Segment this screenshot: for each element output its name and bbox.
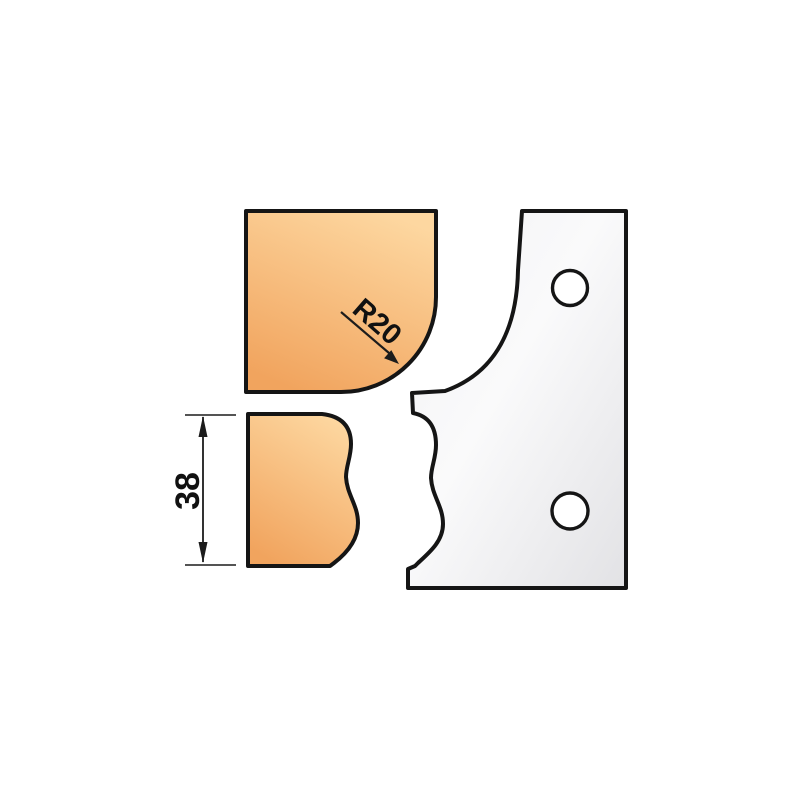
height-dimension: 38 xyxy=(169,415,236,565)
mounting-hole-top xyxy=(553,271,588,306)
mounting-hole-bottom xyxy=(552,493,588,529)
dimension-arrowhead-down-icon xyxy=(199,542,208,563)
dimension-arrowhead-up-icon xyxy=(199,416,208,437)
height-dimension-label: 38 xyxy=(169,472,207,510)
wood-profile-top xyxy=(246,211,436,392)
wood-profile-bottom xyxy=(248,414,358,566)
profile-knife-diagram: R20 38 xyxy=(0,0,800,800)
profile-knife-blank xyxy=(408,211,626,588)
drawing-canvas: R20 38 xyxy=(0,0,800,800)
